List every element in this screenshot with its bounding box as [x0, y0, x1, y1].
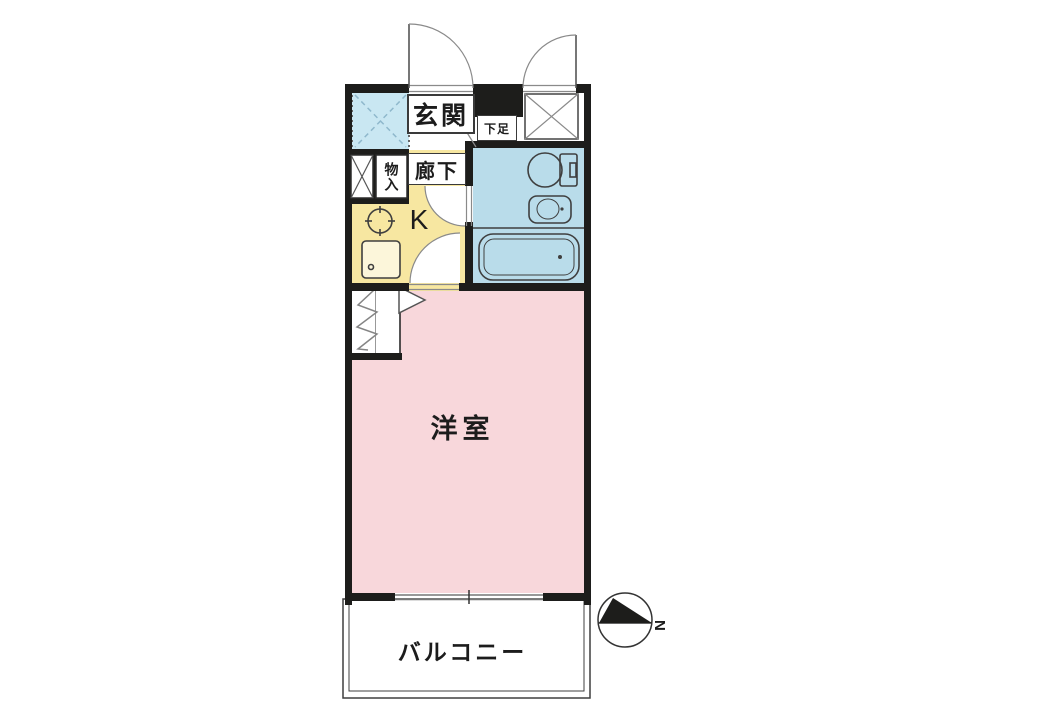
floor-plan-drawing: N [0, 0, 1040, 720]
storage-label: 物入 [376, 155, 407, 198]
void-hatch-icon [352, 92, 409, 150]
hallway-label: 廊下 [408, 153, 466, 185]
entrance-door-swings [409, 24, 576, 88]
floor-plan-canvas: N 玄関 下足 廊下 物入 K 洋室 バルコニー [0, 0, 1040, 720]
crossed-box-icon [351, 155, 373, 198]
kitchen-label: K [402, 202, 436, 238]
crossed-box-icon [525, 94, 578, 139]
north-arrow-icon: N [598, 593, 668, 647]
closet-hanger-icon [351, 284, 400, 354]
shoe-cabinet-label: 下足 [477, 115, 517, 141]
western-room-label: 洋室 [395, 409, 530, 443]
balcony-label: バルコニー [355, 635, 570, 665]
entrance-label: 玄関 [407, 94, 475, 134]
compass-north-label: N [651, 620, 668, 631]
kitchen-sink-icon [362, 241, 400, 278]
